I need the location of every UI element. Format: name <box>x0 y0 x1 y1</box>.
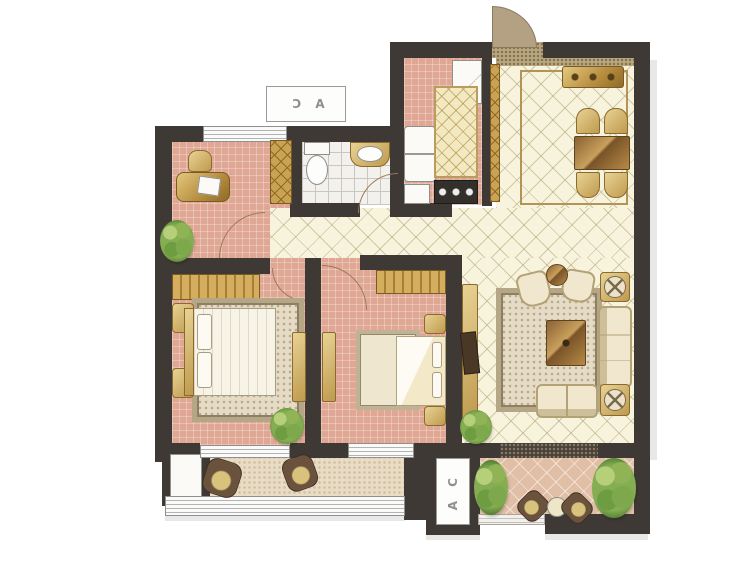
washing-machine <box>404 184 430 204</box>
ac-platform-top: A C <box>266 86 346 122</box>
shadow-bottom-2 <box>165 516 405 521</box>
study-cabinet <box>270 140 292 204</box>
tv-console-bedroom1 <box>292 332 306 402</box>
ac-bottom-label: A C <box>446 473 460 510</box>
right-wall-lower <box>634 443 650 534</box>
headboard-bedroom1 <box>184 308 194 396</box>
living-balcony-slider <box>500 443 598 458</box>
nightstand2-bottom <box>424 406 446 426</box>
balcony1-right-wall <box>404 458 428 520</box>
bedroom2-bottom-wall-left <box>322 443 348 458</box>
right-wall <box>634 42 650 462</box>
shadow-bottom-3 <box>426 535 480 540</box>
balcony2-plant-right <box>592 458 636 518</box>
round-side-table <box>546 264 568 286</box>
lamp-top <box>604 276 626 298</box>
study-plant <box>160 220 194 262</box>
dining-chair-bottom-left <box>576 172 600 198</box>
desk-paper <box>197 176 221 197</box>
kitchen-bottom-wall <box>390 203 452 217</box>
living-plant <box>460 410 492 444</box>
entry-door-leaf <box>492 6 537 48</box>
dining-chair-top-left <box>576 108 600 134</box>
ac-top-label: A C <box>287 97 324 111</box>
pillow2-bedroom1 <box>197 352 212 388</box>
dining-table <box>574 136 630 170</box>
kitchen-island <box>434 86 478 178</box>
dining-edge-band <box>496 58 634 66</box>
bedroom-divider-wall <box>305 258 321 454</box>
bathroom-bottom-wall <box>290 203 360 217</box>
bedroom1-plant <box>270 408 304 444</box>
wardrobe-bedroom1 <box>172 274 260 300</box>
top-wall-left-of-entry <box>390 42 492 58</box>
bathroom-sink <box>357 146 383 162</box>
balcony1-railing <box>165 496 405 516</box>
bedroom2-window <box>348 443 414 458</box>
balcony2-bottom-wall <box>545 514 648 534</box>
dining-sideboard <box>562 66 624 88</box>
utility-niche <box>170 454 202 498</box>
pillow1-bedroom1 <box>197 314 212 350</box>
toilet-tank <box>304 142 330 155</box>
left-wall <box>155 126 172 462</box>
loveseat <box>536 384 598 418</box>
pillow2-bedroom2 <box>432 372 442 398</box>
shadow-right <box>650 60 657 460</box>
kitchen-partition <box>490 64 500 202</box>
bedroom2-top-wall <box>360 255 448 270</box>
coffee-table <box>546 320 586 366</box>
lamp-bottom <box>604 389 626 411</box>
tv-console-bedroom2 <box>322 332 336 402</box>
floor-plan: A C A C <box>0 0 750 562</box>
toilet-bowl <box>306 155 328 185</box>
wardrobe-bedroom2 <box>376 270 446 294</box>
sofa-main <box>598 306 632 388</box>
bathroom-top-wall <box>287 126 404 142</box>
desk-chair <box>188 150 212 172</box>
nightstand2-top <box>424 314 446 334</box>
dining-chair-top-right <box>604 108 628 134</box>
dining-chair-bottom-right <box>604 172 628 198</box>
stove <box>434 180 478 204</box>
ac-platform-bottom: A C <box>436 458 470 525</box>
balcony2-plant-left <box>474 460 508 515</box>
shadow-bottom-1 <box>545 534 648 540</box>
pillow1-bedroom2 <box>432 342 442 368</box>
kitchen-sink <box>404 126 436 182</box>
bedroom1-balcony-slider <box>200 445 290 458</box>
